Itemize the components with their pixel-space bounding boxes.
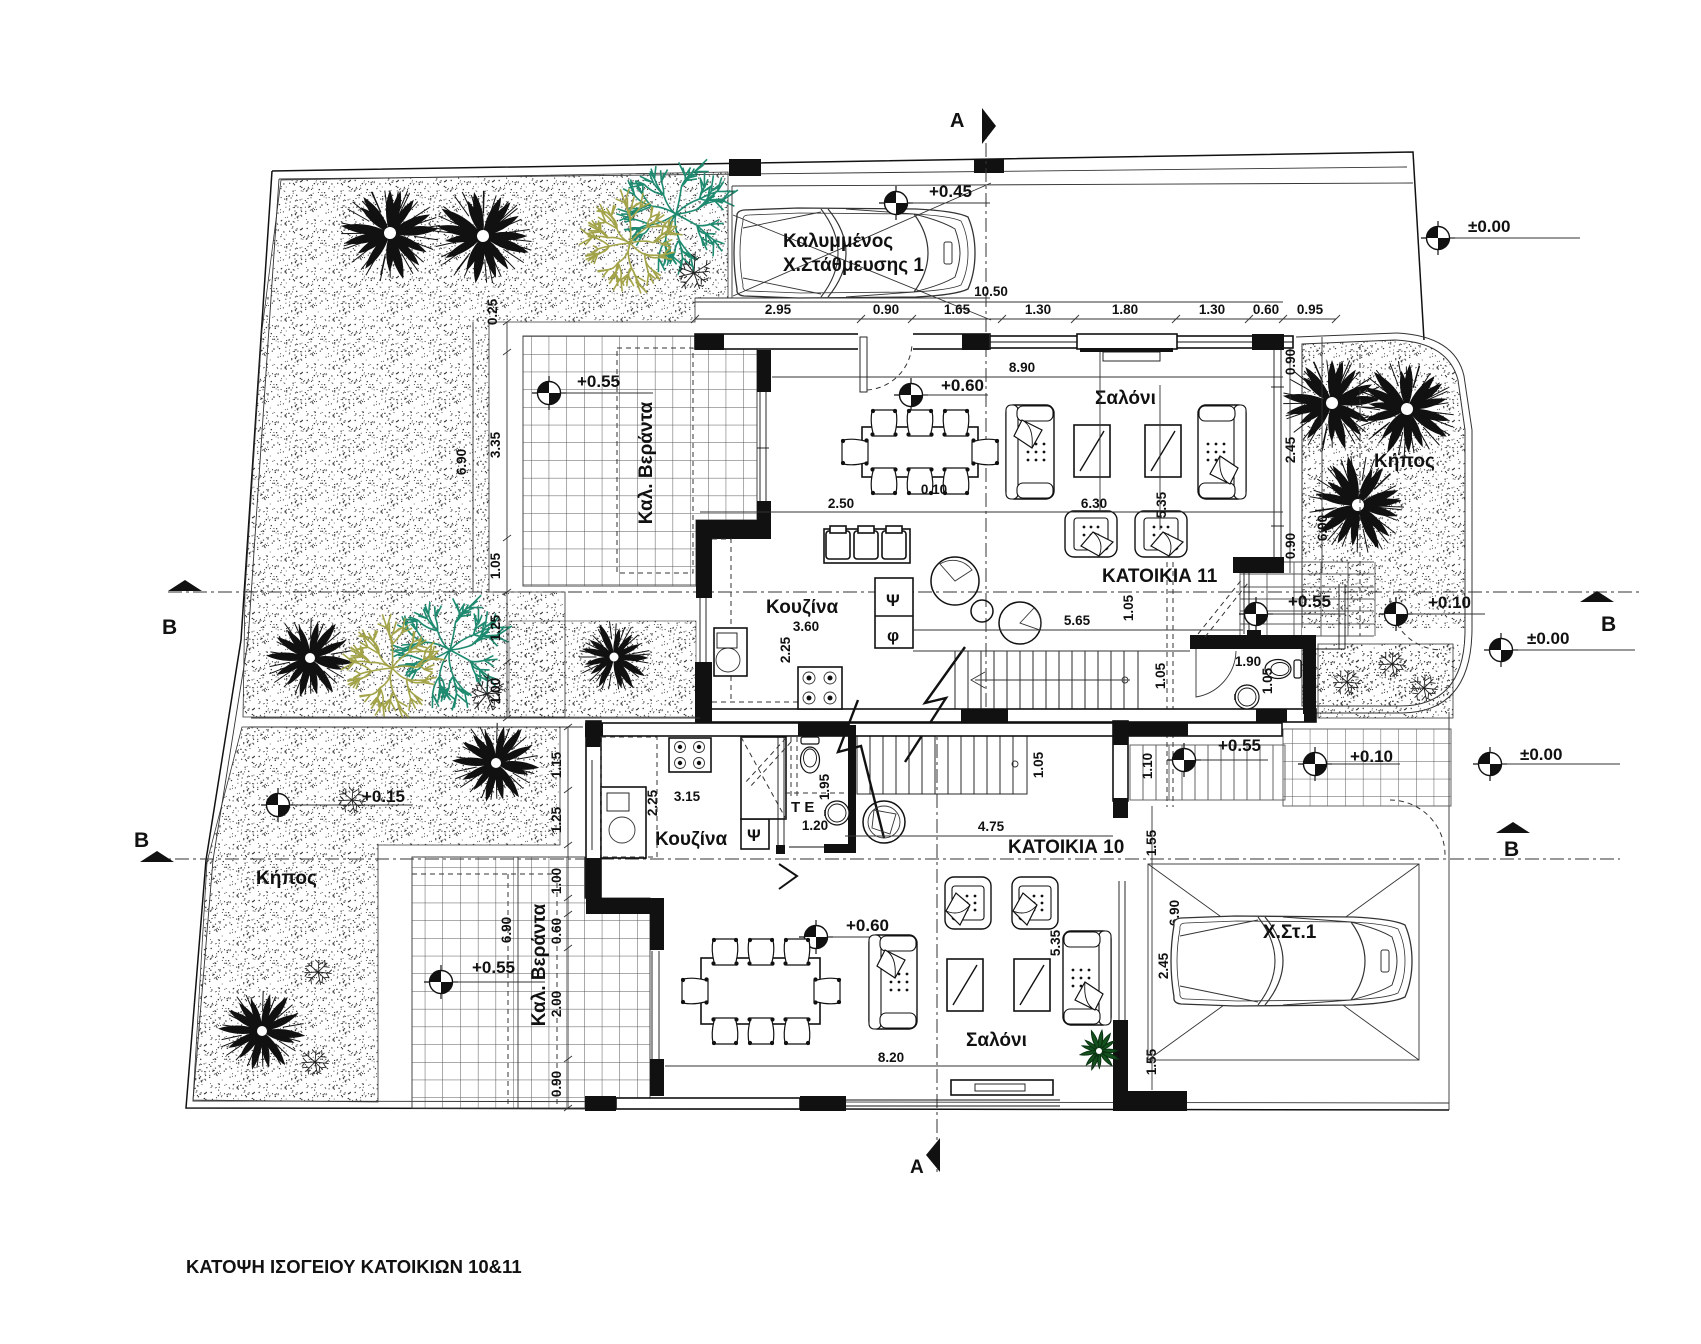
svg-text:Καλ. Βεράντα: Καλ. Βεράντα	[636, 401, 657, 524]
svg-text:Τ Ε: Τ Ε	[791, 799, 814, 816]
svg-text:0.90: 0.90	[549, 1071, 564, 1097]
svg-text:+0.60: +0.60	[941, 376, 984, 395]
svg-text:6.90: 6.90	[454, 449, 469, 475]
svg-text:B: B	[134, 829, 149, 852]
svg-text:+0.55: +0.55	[577, 372, 620, 391]
svg-text:Σαλόνι: Σαλόνι	[1095, 388, 1156, 409]
svg-text:6.90: 6.90	[1315, 515, 1330, 541]
svg-text:8.20: 8.20	[878, 1050, 904, 1065]
svg-text:2.95: 2.95	[765, 302, 792, 317]
svg-text:3.60: 3.60	[793, 619, 819, 634]
svg-text:5.65: 5.65	[1064, 613, 1091, 628]
svg-text:Καλυμμένος: Καλυμμένος	[783, 231, 893, 252]
svg-text:5.35: 5.35	[1048, 929, 1063, 956]
svg-text:8.90: 8.90	[1009, 360, 1035, 375]
svg-text:+0.55: +0.55	[1218, 736, 1261, 755]
svg-text:0.90: 0.90	[873, 302, 899, 317]
svg-text:Χ.Στ.1: Χ.Στ.1	[1263, 922, 1317, 943]
svg-text:Κουζίνα: Κουζίνα	[655, 829, 728, 850]
svg-text:1.05: 1.05	[1153, 662, 1168, 689]
svg-text:3.15: 3.15	[674, 789, 701, 804]
svg-text:Ψ: Ψ	[886, 591, 900, 610]
svg-text:1.90: 1.90	[1235, 654, 1261, 669]
svg-text:0.10: 0.10	[921, 482, 947, 497]
svg-text:1.20: 1.20	[802, 818, 828, 833]
svg-text:Κουζίνα: Κουζίνα	[766, 597, 839, 618]
svg-text:+0.15: +0.15	[362, 787, 405, 806]
svg-text:1.05: 1.05	[488, 552, 503, 579]
svg-text:+0.55: +0.55	[1288, 592, 1331, 611]
svg-text:2.50: 2.50	[828, 496, 854, 511]
svg-text:0.25: 0.25	[485, 298, 500, 325]
svg-text:2.00: 2.00	[549, 991, 564, 1017]
svg-text:+0.55: +0.55	[472, 958, 515, 977]
svg-text:A: A	[950, 110, 964, 132]
svg-text:4.75: 4.75	[978, 819, 1005, 834]
svg-text:1.30: 1.30	[1025, 302, 1051, 317]
svg-text:+0.60: +0.60	[846, 916, 889, 935]
svg-text:B: B	[1504, 838, 1519, 861]
svg-text:0.60: 0.60	[1253, 302, 1279, 317]
svg-text:1.80: 1.80	[1112, 302, 1138, 317]
svg-text:1.25: 1.25	[549, 806, 564, 833]
svg-text:B: B	[162, 616, 177, 639]
svg-text:Ψ: Ψ	[747, 826, 761, 845]
svg-text:+0.10: +0.10	[1350, 747, 1393, 766]
svg-text:1.05: 1.05	[1121, 594, 1136, 621]
svg-text:±0.00: ±0.00	[1468, 217, 1510, 236]
svg-text:0.95: 0.95	[1297, 302, 1324, 317]
svg-text:ΚΑΤΟΙΚΙΑ 11: ΚΑΤΟΙΚΙΑ 11	[1102, 566, 1218, 587]
svg-text:1.00: 1.00	[488, 678, 503, 704]
svg-text:6.30: 6.30	[1081, 496, 1107, 511]
svg-text:1.55: 1.55	[1144, 1048, 1159, 1075]
svg-text:Κήπος: Κήπος	[256, 868, 317, 889]
svg-text:1.05: 1.05	[1260, 667, 1275, 694]
svg-text:2.45: 2.45	[1156, 952, 1171, 979]
svg-text:1.05: 1.05	[1031, 751, 1046, 778]
svg-text:Κήπος: Κήπος	[1374, 451, 1435, 472]
svg-text:1.30: 1.30	[1199, 302, 1225, 317]
svg-text:Σαλόνι: Σαλόνι	[966, 1030, 1027, 1051]
svg-text:A: A	[910, 1157, 924, 1178]
svg-text:+0.45: +0.45	[929, 182, 972, 201]
svg-text:±0.00: ±0.00	[1520, 745, 1562, 764]
svg-text:0.90: 0.90	[1283, 349, 1298, 375]
svg-text:ΚΑΤΟΨΗ ΙΣΟΓΕΙΟΥ ΚΑΤΟΙΚΙΩΝ 10&1: ΚΑΤΟΨΗ ΙΣΟΓΕΙΟΥ ΚΑΤΟΙΚΙΩΝ 10&11	[186, 1256, 522, 1277]
svg-text:2.25: 2.25	[645, 789, 660, 816]
svg-text:2.25: 2.25	[778, 636, 793, 663]
svg-text:1.25: 1.25	[488, 614, 503, 641]
svg-text:5.35: 5.35	[1154, 491, 1169, 518]
svg-text:1.95: 1.95	[817, 773, 832, 800]
svg-text:1.65: 1.65	[944, 302, 971, 317]
svg-text:+0.10: +0.10	[1428, 593, 1471, 612]
svg-text:6.90: 6.90	[499, 917, 514, 943]
svg-text:10.50: 10.50	[974, 284, 1008, 299]
svg-text:1.10: 1.10	[1140, 753, 1155, 779]
svg-text:1.55: 1.55	[1144, 829, 1159, 856]
svg-text:2.45: 2.45	[1283, 436, 1298, 463]
svg-text:Καλ. Βεράντα: Καλ. Βεράντα	[529, 903, 550, 1026]
svg-text:B: B	[1601, 613, 1616, 636]
svg-text:0.90: 0.90	[1283, 533, 1298, 559]
svg-text:±0.00: ±0.00	[1527, 629, 1569, 648]
svg-text:0.60: 0.60	[549, 918, 564, 944]
svg-text:Χ.Στάθμευσης 1: Χ.Στάθμευσης 1	[783, 255, 924, 276]
svg-text:1.15: 1.15	[549, 751, 564, 778]
svg-text:φ: φ	[887, 626, 899, 645]
svg-text:ΚΑΤΟΙΚΙΑ 10: ΚΑΤΟΙΚΙΑ 10	[1008, 837, 1124, 858]
svg-text:3.35: 3.35	[488, 431, 503, 458]
svg-text:1.00: 1.00	[549, 868, 564, 894]
